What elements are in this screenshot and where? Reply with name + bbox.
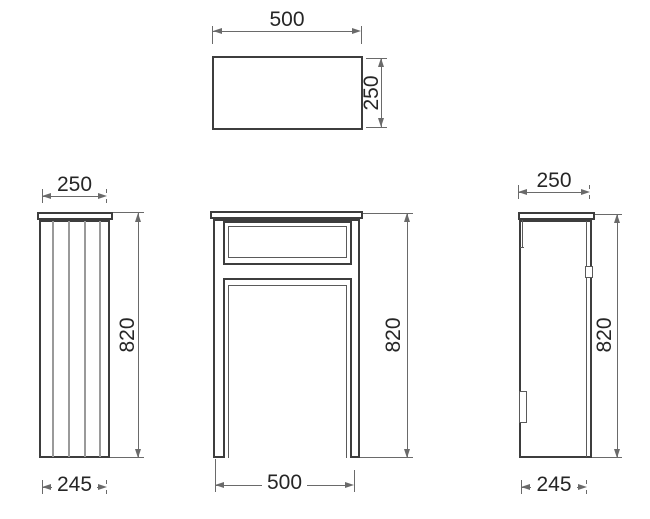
upper-panel-inner: [228, 226, 347, 258]
right-view-outline: [519, 220, 592, 458]
right-view-top-cap: [518, 212, 595, 220]
dimension-label: 245: [42, 474, 107, 496]
dimension-label-text: 245: [52, 474, 97, 496]
top-view-outline: [212, 56, 363, 130]
dimension-label-text: 245: [531, 474, 576, 496]
front-view-top-cap: [210, 211, 363, 219]
extension-line: [354, 470, 355, 492]
dim-arrow-up-icon: [135, 213, 141, 222]
dimension-label: 245: [521, 474, 587, 496]
panel-groove-line: [52, 221, 54, 457]
dimension-label: 250: [42, 174, 107, 196]
dim-arrow-down-icon: [404, 449, 410, 458]
back-panel-edge-line: [586, 221, 587, 457]
dimension-label: 500: [215, 472, 354, 494]
front-frame-edge-line: [522, 220, 523, 248]
dim-arrow-up-icon: [614, 214, 620, 223]
dimension-label: 820: [383, 303, 405, 367]
dimension-line: [213, 31, 361, 32]
dimension-label: 250: [518, 170, 590, 192]
dimension-label: 250: [361, 61, 383, 125]
dimension-label: 820: [117, 303, 139, 367]
dimension-label: 820: [594, 303, 616, 367]
wall-bracket-block: [585, 266, 593, 278]
panel-groove-line: [99, 221, 101, 457]
dimension-line: [407, 213, 408, 458]
hinge-block: [519, 391, 527, 423]
door-panel-inner: [228, 285, 347, 458]
drawing-canvas: 500 250 250 820 245: [0, 0, 650, 519]
dimension-line: [617, 214, 618, 458]
panel-groove-line: [84, 221, 86, 457]
dim-arrow-down-icon: [135, 449, 141, 458]
front-frame-step-line: [520, 247, 524, 248]
dimension-label: 500: [213, 9, 361, 31]
dimension-line: [518, 192, 590, 193]
extension-line: [361, 26, 362, 44]
extension-line: [366, 127, 387, 128]
dim-arrow-up-icon: [404, 213, 410, 222]
dim-arrow-down-icon: [614, 449, 620, 458]
dimension-label-text: 500: [262, 472, 307, 494]
left-view-top-cap: [37, 212, 113, 220]
panel-groove-line: [68, 221, 70, 457]
